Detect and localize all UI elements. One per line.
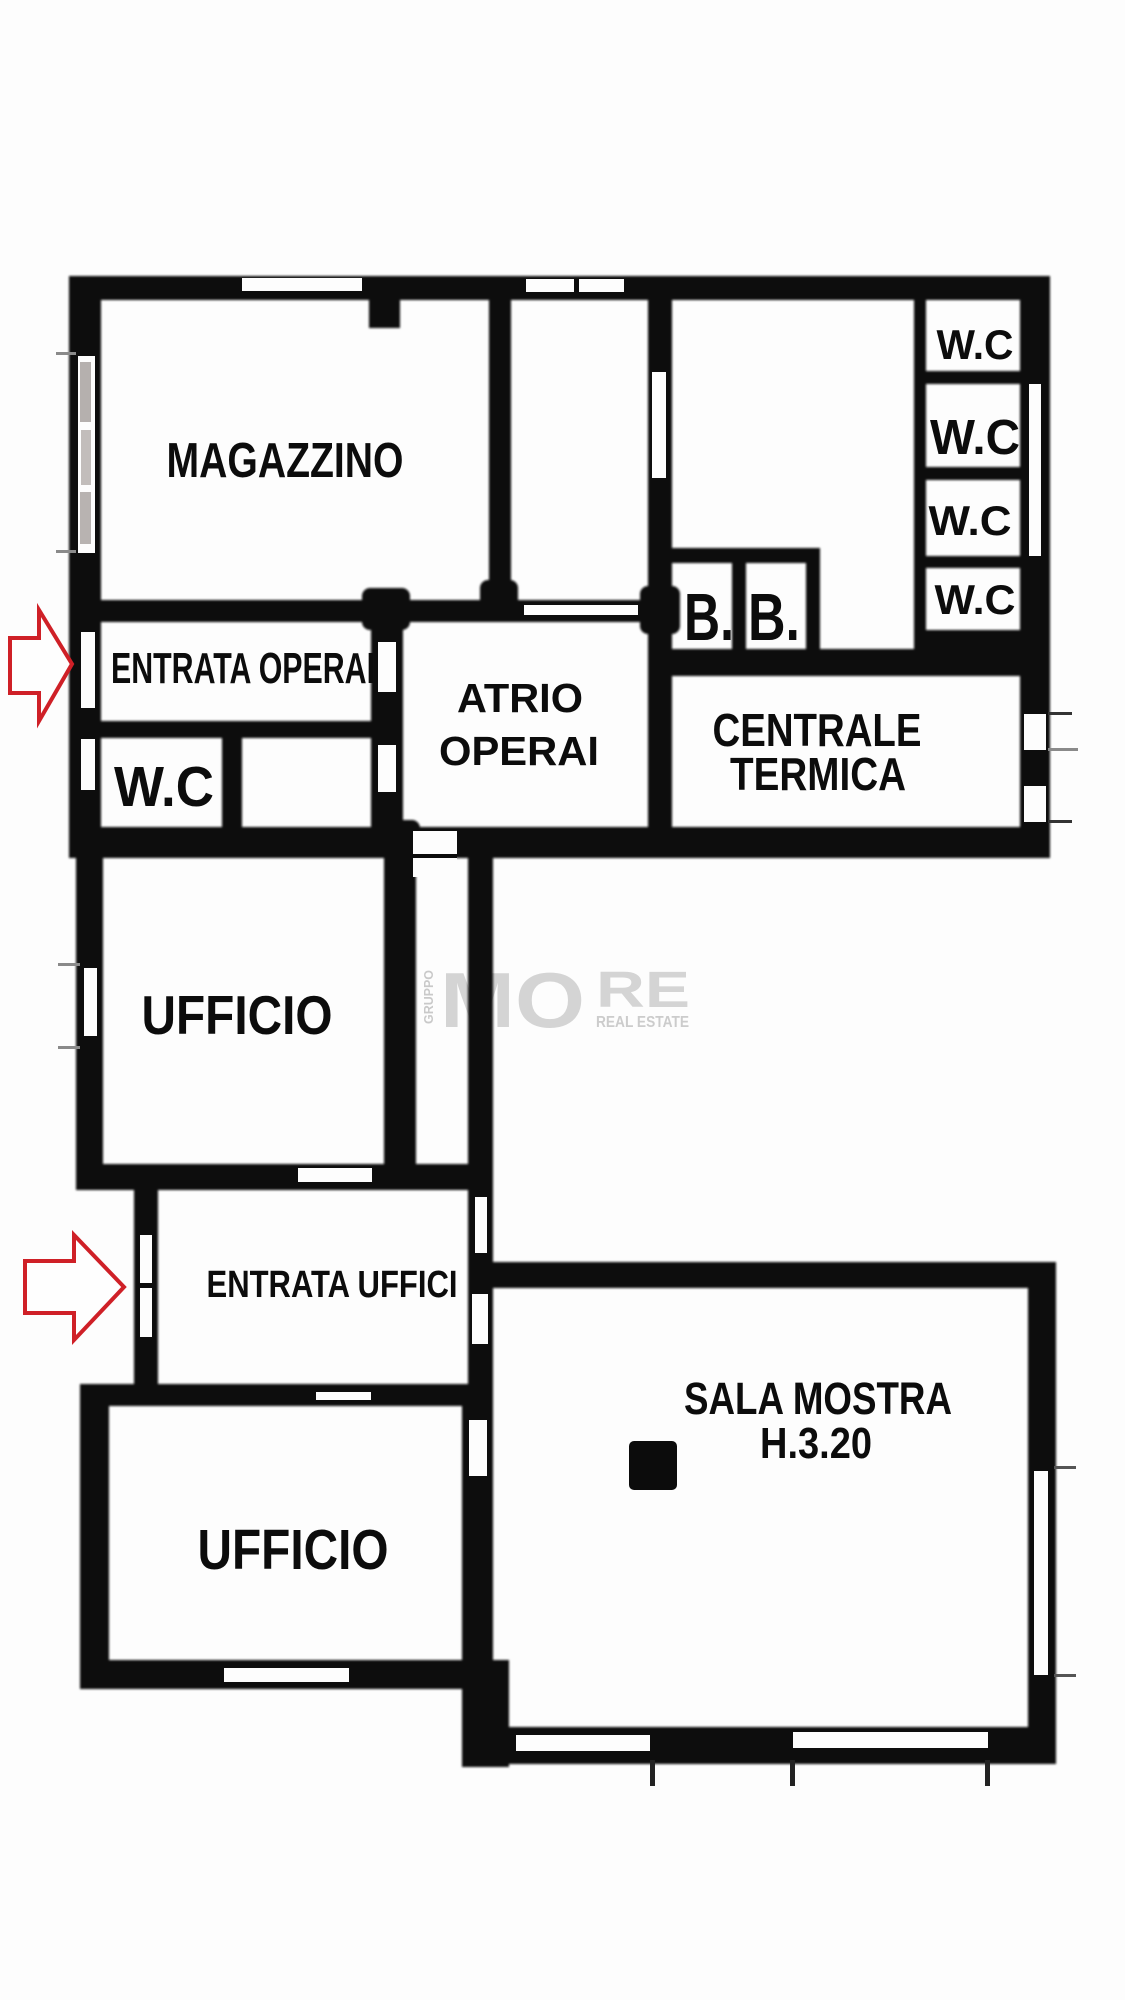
svg-text:REAL ESTATE: REAL ESTATE [596, 1014, 689, 1031]
svg-text:MAGAZZINO: MAGAZZINO [167, 434, 404, 488]
svg-text:SALA MOSTRA: SALA MOSTRA [684, 1373, 952, 1424]
svg-text:W.C: W.C [929, 497, 1012, 544]
svg-text:W.C: W.C [935, 576, 1016, 623]
svg-text:B.: B. [748, 580, 800, 655]
svg-text:B.: B. [684, 580, 734, 655]
svg-text:RE: RE [596, 961, 690, 1018]
svg-text:H.3.20: H.3.20 [760, 1419, 872, 1468]
svg-text:TERMICA: TERMICA [730, 748, 906, 800]
svg-text:W.C: W.C [114, 755, 214, 819]
svg-text:OPERAI: OPERAI [439, 728, 599, 774]
svg-text:W.C: W.C [930, 411, 1020, 465]
svg-text:UFFICIO: UFFICIO [142, 984, 333, 1046]
svg-text:ENTRATA UFFICI: ENTRATA UFFICI [207, 1264, 458, 1306]
svg-text:ENTRATA OPERAI: ENTRATA OPERAI [111, 644, 375, 693]
svg-text:MO: MO [440, 956, 585, 1044]
svg-text:ATRIO: ATRIO [457, 675, 583, 721]
svg-text:UFFICIO: UFFICIO [198, 1518, 389, 1582]
svg-text:GRUPPO: GRUPPO [421, 970, 436, 1024]
svg-text:W.C: W.C [937, 321, 1014, 368]
